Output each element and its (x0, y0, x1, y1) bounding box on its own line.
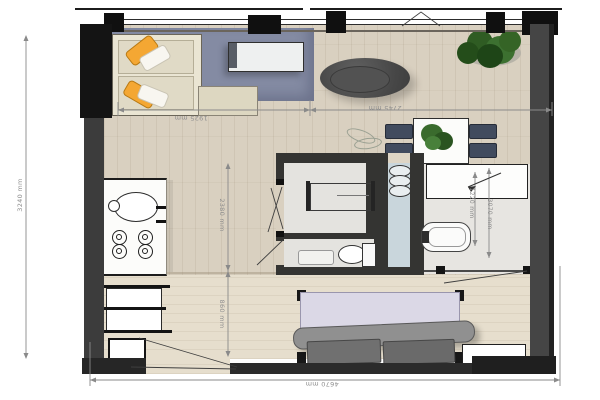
burner-center (142, 234, 148, 240)
cooktop-burner (112, 230, 127, 245)
pouf-seat (330, 66, 390, 93)
bench-line (337, 195, 369, 196)
dining-chair (469, 143, 497, 158)
washing-machine-ring (389, 185, 411, 197)
nook-opening (388, 153, 410, 163)
dim-dining-width: 2745 mm (355, 103, 415, 113)
dining-chair (469, 124, 497, 139)
shelf-line (104, 307, 166, 310)
seat-cushion (307, 339, 382, 366)
entry-floor (146, 357, 230, 374)
bench-post (371, 181, 375, 211)
shower-door-gap (276, 185, 284, 231)
window-post (326, 11, 346, 33)
leaf-decor (346, 126, 386, 152)
east-room (424, 160, 532, 275)
bath-mat (298, 250, 334, 265)
burner-center (142, 248, 148, 254)
dim-overall-height: 3240 mm (15, 165, 25, 225)
cooktop-burner (138, 230, 153, 245)
wardrobe (426, 164, 528, 199)
dining-chair (385, 124, 413, 139)
toilet-tank (362, 243, 376, 267)
right-wall (530, 24, 554, 374)
kitchen-sink (114, 192, 158, 222)
top-wall-inner-line (108, 30, 532, 32)
left-wall-upper (80, 24, 112, 118)
dim-overall-width: 4670 mm (292, 379, 352, 389)
sink-faucet (108, 200, 120, 212)
window-line (112, 24, 532, 25)
table-plant (425, 136, 441, 150)
door-jamb (436, 266, 445, 274)
door-jamb (276, 231, 284, 237)
kitchen-counter (104, 178, 167, 276)
window-post (248, 15, 281, 34)
potted-plant (455, 28, 531, 70)
bathtub (421, 222, 471, 252)
window-line (112, 19, 532, 20)
dim-bath-outer: 3070 mm (484, 184, 494, 244)
plant-leaf (477, 44, 503, 68)
bottom-wall-mid (230, 363, 474, 374)
eave-line (75, 8, 303, 10)
counter-handle (156, 220, 166, 223)
shelf-line (104, 285, 170, 288)
coffee-table (228, 42, 304, 72)
dim-corridor-lower: 860 mm (217, 284, 227, 344)
wc-door-gap (276, 241, 284, 265)
plant-leaf (457, 42, 479, 64)
window-post (486, 12, 505, 33)
sofa-bed (295, 288, 475, 366)
eave-line (310, 8, 562, 10)
door-jamb (276, 179, 284, 185)
shelf-body (106, 288, 162, 332)
coffee-table-shadow-edge (229, 43, 237, 68)
cooktop-burner (112, 244, 127, 259)
seat-cushion (383, 339, 456, 365)
bottom-wall-right (472, 356, 556, 374)
shower-bench (310, 183, 372, 211)
storage-shelf (104, 283, 176, 335)
plant-leaf (499, 30, 521, 52)
bathroom-block (276, 153, 424, 275)
burner-center (116, 234, 122, 240)
counter-shadow (167, 180, 173, 272)
dim-living-width: 1925 mm (161, 113, 221, 123)
bottom-wall-left (82, 358, 146, 374)
tub-inner (428, 227, 466, 247)
sofa-chaise (198, 86, 258, 116)
bench-post (306, 181, 310, 211)
burner-center (116, 248, 122, 254)
floor-plan-canvas: 1925 mm 2745 mm 4670 mm 3240 mm 2380 mm … (0, 0, 600, 400)
dim-bath-inner: 1220 mm (466, 173, 476, 233)
round-pouf (320, 58, 410, 98)
dim-corridor-upper: 2380 mm (217, 185, 227, 245)
tub-faucet (422, 231, 429, 243)
left-wall (84, 118, 104, 372)
shelf-line (104, 330, 172, 333)
counter-handle (156, 206, 166, 209)
cooktop-burner (138, 244, 153, 259)
